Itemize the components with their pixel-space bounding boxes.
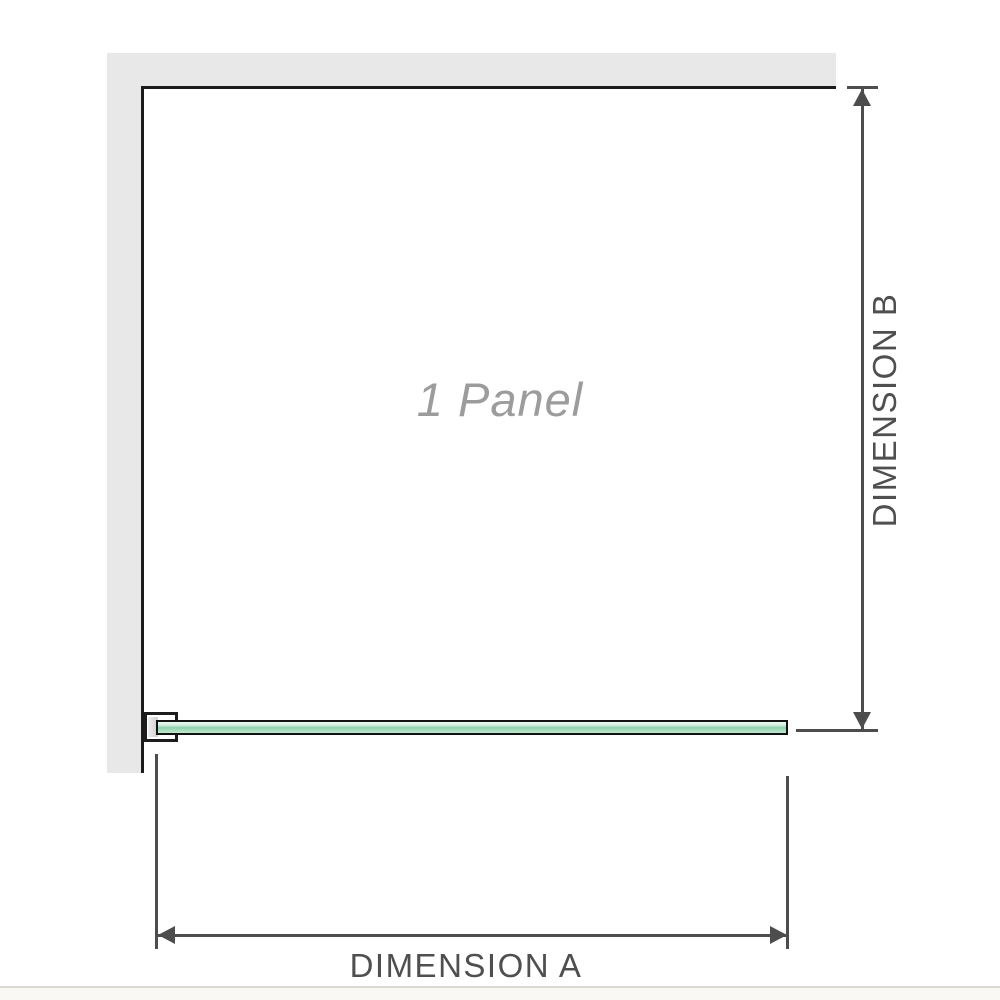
panel-outline-left <box>141 86 144 773</box>
dimension-b-line <box>861 88 864 730</box>
arrow-down-icon <box>853 712 871 729</box>
wall-top <box>107 53 836 86</box>
arrow-left-icon <box>158 926 175 944</box>
panel-label: 1 Panel <box>300 368 700 432</box>
dimension-b-label: DIMENSION B <box>866 293 904 528</box>
dimension-a-label: DIMENSION A <box>350 947 583 985</box>
page-footer-band <box>0 988 1000 1000</box>
wall-left <box>107 53 141 773</box>
arrow-up-icon <box>853 89 871 106</box>
dimension-a-line <box>157 934 788 937</box>
arrow-right-icon <box>770 926 787 944</box>
shower-panel-diagram: 1 Panel DIMENSION B DIMENSION A <box>0 0 1000 1000</box>
dimension-a-extension-left <box>155 754 158 949</box>
dimension-b-cap-bottom <box>796 729 878 732</box>
dimension-a-extension-right <box>786 776 789 949</box>
panel-outline-top <box>141 86 836 89</box>
glass-panel-plan-view <box>156 720 788 735</box>
